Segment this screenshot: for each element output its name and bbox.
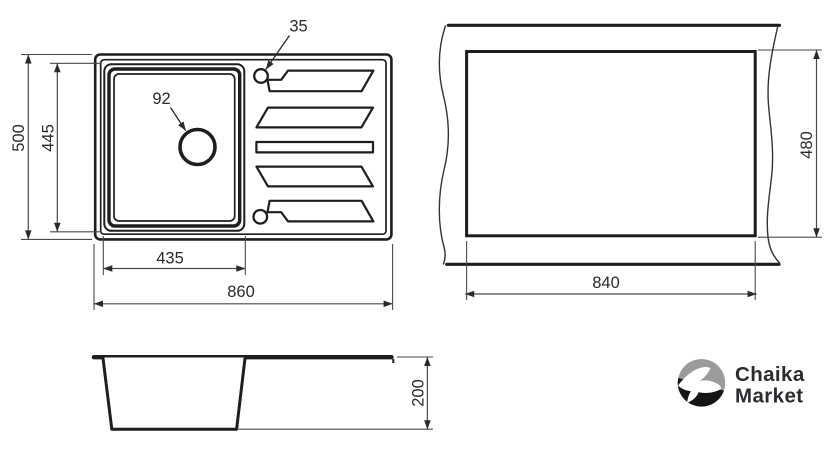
callout-tap-hole-diameter: 35 [266,18,308,70]
dim-label-tap-hole-diameter: 35 [289,18,307,36]
brand-name-line2: Market [735,385,804,408]
technical-drawing-page: 500 445 435 860 92 35 [0,0,840,453]
dim-label-overall-width: 860 [227,283,255,301]
leader-line [171,108,186,131]
bowl-rim [109,69,240,226]
dimension-bowl-depth: 445 [39,63,101,232]
dim-label-bowl-width: 435 [156,250,184,268]
callout-drain-diameter: 92 [152,90,185,131]
brand-logo: Chaika Market [677,359,805,408]
leader-line [266,36,290,70]
tap-hole-top-circle [254,69,268,83]
dim-label-drain-diameter: 92 [152,90,170,108]
dimension-cutout-width: 840 [465,241,756,300]
dim-label-bowl-depth: 445 [39,124,57,152]
dim-label-cutout-height: 480 [798,131,816,159]
drainboard-groove-1 [268,71,374,92]
drainboard-groove-2 [256,108,373,128]
bowl-profile [103,358,245,430]
dim-label-overall-depth: 500 [10,124,28,152]
side-view: 200 [92,355,433,429]
drainboard-groove-5 [268,201,374,222]
countertop-break-line-left [439,26,448,265]
tap-hole-bottom-circle [253,210,267,224]
sink-technical-drawing: 500 445 435 860 92 35 [0,0,840,453]
plan-view: 500 445 435 860 92 35 [10,18,393,311]
brand-name-line1: Chaika [735,363,805,386]
dim-label-depth: 200 [409,379,427,407]
drainboard-groove-4 [256,167,373,187]
cutout-view: 840 480 [439,25,822,300]
drainboard-groove-3 [256,142,373,152]
dim-label-cutout-width: 840 [592,274,620,292]
cutout-rectangle [467,52,756,236]
bowl-outline-outer [104,64,244,231]
dimension-overall-width: 860 [94,244,393,310]
dimension-bowl-depth-side: 200 [409,357,427,429]
seagull-icon [677,359,728,408]
countertop-break-line-right [767,26,780,264]
drain-hole-circle [180,130,215,165]
dimension-bowl-width: 435 [103,236,245,275]
